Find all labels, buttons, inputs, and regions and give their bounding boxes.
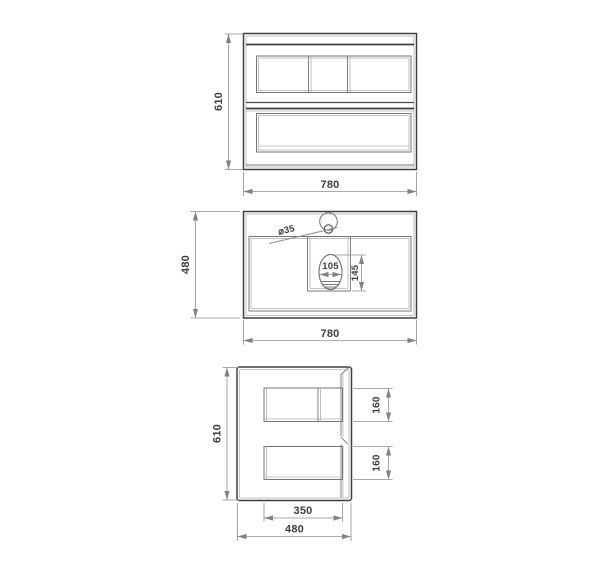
side-upper-drawer-opening: [264, 388, 343, 422]
front-cabinet-outline: [244, 34, 417, 170]
side-height-dimension: 610: [212, 368, 240, 501]
side-cabinet-outline: [237, 367, 352, 501]
drawing-canvas: 610 780 105: [0, 0, 600, 579]
faucet-diameter-label: ⌀35: [277, 223, 296, 238]
side-width-dim-label: 480: [285, 524, 304, 536]
side-lower-drawer-opening: [264, 447, 343, 480]
top-width-dim-label: 780: [321, 328, 340, 340]
front-bottom-drawer: [257, 114, 412, 153]
upper-drawer-height-label: 160: [372, 396, 383, 414]
faucet-hole: [320, 213, 338, 234]
side-height-dim-label: 610: [212, 424, 224, 443]
drain-depth-label: 145: [350, 264, 361, 281]
top-view: 105 145 ⌀35 480 780: [180, 212, 417, 345]
technical-drawing: 610 780 105: [0, 0, 600, 579]
front-top-drawer: [246, 56, 414, 111]
front-height-dim-label: 610: [213, 92, 225, 111]
side-inner-width-dimension: 350: [264, 503, 343, 522]
top-width-dimension: 780: [244, 320, 417, 345]
front-view: 610 780: [213, 34, 417, 197]
upper-drawer-height-dimension: 160: [353, 389, 393, 422]
lower-drawer-height-dimension: 160: [353, 447, 393, 480]
front-width-dim-label: 780: [321, 179, 340, 191]
top-height-dim-label: 480: [180, 255, 192, 274]
drain-width-dimension: 105: [320, 261, 342, 275]
front-height-dimension: 610: [213, 34, 244, 170]
side-view: 610 160 160 350 480: [212, 367, 393, 541]
lower-drawer-height-label: 160: [372, 454, 383, 472]
top-height-dimension: 480: [180, 212, 240, 319]
drain-width-label: 105: [322, 261, 339, 272]
front-width-dimension: 780: [244, 172, 417, 196]
side-inner-width-label: 350: [294, 505, 313, 517]
drain-hole: [319, 255, 342, 290]
